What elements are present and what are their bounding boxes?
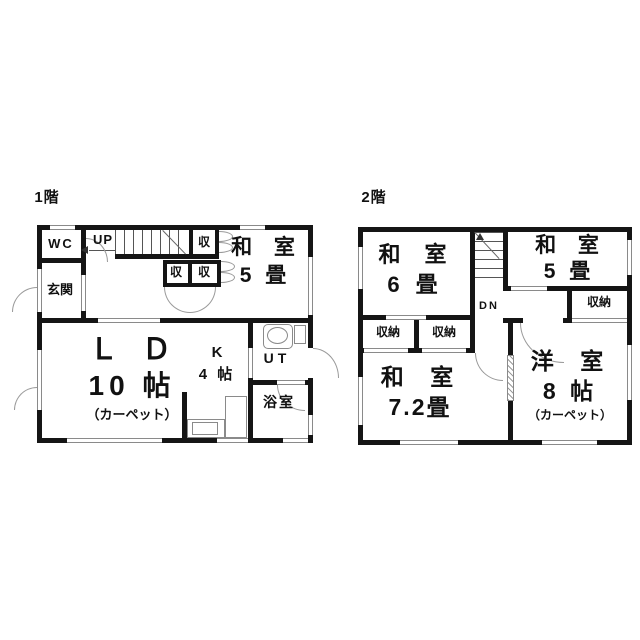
wall-closets-top: [163, 260, 221, 264]
wall-storage-divider: [414, 320, 419, 348]
washbasin-bowl: [267, 327, 288, 344]
window: [627, 345, 632, 400]
door-kitchen-ut: [248, 348, 253, 378]
closet-bifold-arc: [221, 261, 235, 272]
storage-label: 収納: [587, 296, 611, 309]
stairs-down-label: DN: [479, 301, 499, 313]
wall-stair-right: [503, 227, 508, 288]
sliding-door-genkan: [81, 275, 86, 311]
room-label-washitsu72: 和 室: [381, 365, 463, 389]
room-label-bath: 浴室: [263, 395, 295, 410]
window: [400, 440, 458, 445]
window: [627, 240, 632, 275]
room-label-ld-note: （カーペット）: [86, 408, 177, 422]
room-label-yoshitsu8-note: （カーペット）: [528, 409, 612, 422]
room-label-kitchen: K: [212, 345, 223, 361]
floor2-title: 2階: [361, 190, 386, 206]
room-label-yoshitsu8-size: 8 帖: [543, 379, 597, 403]
sliding-door-washitsu5: [511, 286, 547, 291]
washitsu5-door-arc-right: [190, 287, 216, 313]
wall-main-horizontal: [37, 318, 313, 323]
window: [308, 415, 313, 435]
ut-backdoor-arc: [313, 348, 339, 378]
wall-closets-mid: [188, 260, 192, 287]
window: [308, 257, 313, 315]
closet-bifold-arc: [221, 272, 235, 283]
room-label-wc: WC: [48, 237, 74, 251]
stairs-down-arrow: [476, 233, 484, 240]
closet-label: 収: [198, 236, 210, 249]
wall-closets-left: [163, 260, 167, 287]
storage-label: 収納: [432, 326, 456, 339]
room-label-washitsu5: 和 室: [231, 237, 303, 259]
window: [358, 377, 363, 425]
sliding-door-storage-right: [572, 318, 627, 323]
sliding-door-storage-b: [422, 348, 466, 353]
entrance-door-opening: [37, 269, 42, 312]
kitchen-sink: [192, 422, 218, 435]
room-label-washitsu5-size: 5 畳: [544, 261, 595, 283]
window: [50, 225, 75, 230]
room-label-washitsu72-size: 7.2畳: [389, 395, 452, 419]
room-label-ut: UT: [264, 351, 291, 366]
window: [217, 438, 248, 443]
window: [67, 438, 162, 443]
washitsu5-door-arc-left: [164, 287, 190, 313]
room-label-washitsu5-size: 5 畳: [240, 265, 291, 287]
floor2-plan: 和 室 6 畳 DN 和 室 5 畳 収納 収納 収納 和 室 7.2畳 洋 室…: [358, 227, 632, 445]
closet-label: 収: [170, 266, 182, 279]
room-label-washitsu5: 和 室: [535, 235, 607, 257]
hatched-wall-strip: [507, 355, 514, 401]
sliding-door-storage-a: [364, 348, 408, 353]
window: [240, 225, 265, 230]
window: [358, 247, 363, 289]
window: [283, 438, 308, 443]
wall-stairs-bottom: [115, 254, 219, 259]
room-label-ld: Ｌ Ｄ: [89, 335, 179, 365]
room-label-yoshitsu8: 洋 室: [531, 349, 613, 373]
floor1-plan: WC UP 玄関 収 収 収 和 室 5 畳 Ｌ Ｄ 10 帖 （カーペット） …: [37, 225, 313, 443]
sliding-door-washitsu6: [386, 315, 426, 320]
closet-label: 収: [198, 266, 210, 279]
room-label-kitchen-size: 4 帖: [199, 367, 236, 383]
kitchen-counter-step: [225, 396, 247, 438]
storage-label: 収納: [376, 326, 400, 339]
stairs-up-label: UP: [93, 233, 113, 247]
wall-yoshitsu-top-stub: [563, 318, 572, 323]
wall-closet-top-left: [189, 230, 193, 258]
laundry-box: [294, 325, 306, 344]
room-label-washitsu6-size: 6 畳: [387, 273, 442, 296]
washitsu72-door-arc: [475, 353, 503, 381]
floor1-title: 1階: [34, 190, 59, 206]
room-label-genkan: 玄関: [47, 283, 73, 297]
entrance-door-arc: [12, 287, 37, 312]
wall-wc-bottom: [37, 258, 86, 263]
window: [542, 440, 597, 445]
room-label-washitsu6: 和 室: [378, 243, 455, 266]
sliding-door-hall-ld: [98, 318, 160, 323]
terrace-door-arc: [14, 387, 37, 410]
window: [37, 350, 42, 410]
room-label-ld-size: 10 帖: [89, 371, 176, 400]
